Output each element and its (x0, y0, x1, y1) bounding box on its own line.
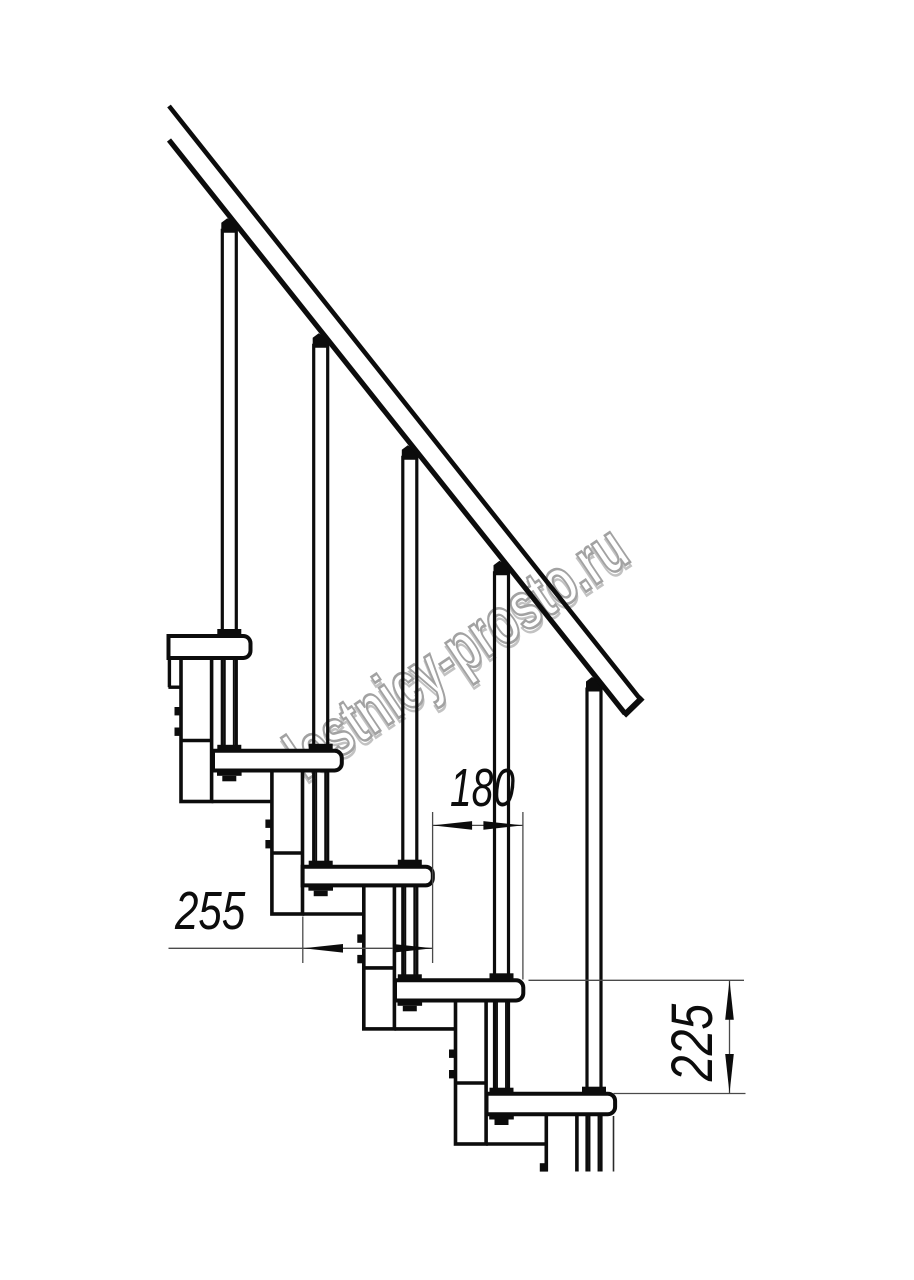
svg-text:255: 255 (174, 881, 246, 941)
svg-text:225: 225 (660, 1003, 725, 1082)
svg-text:180: 180 (450, 757, 515, 818)
